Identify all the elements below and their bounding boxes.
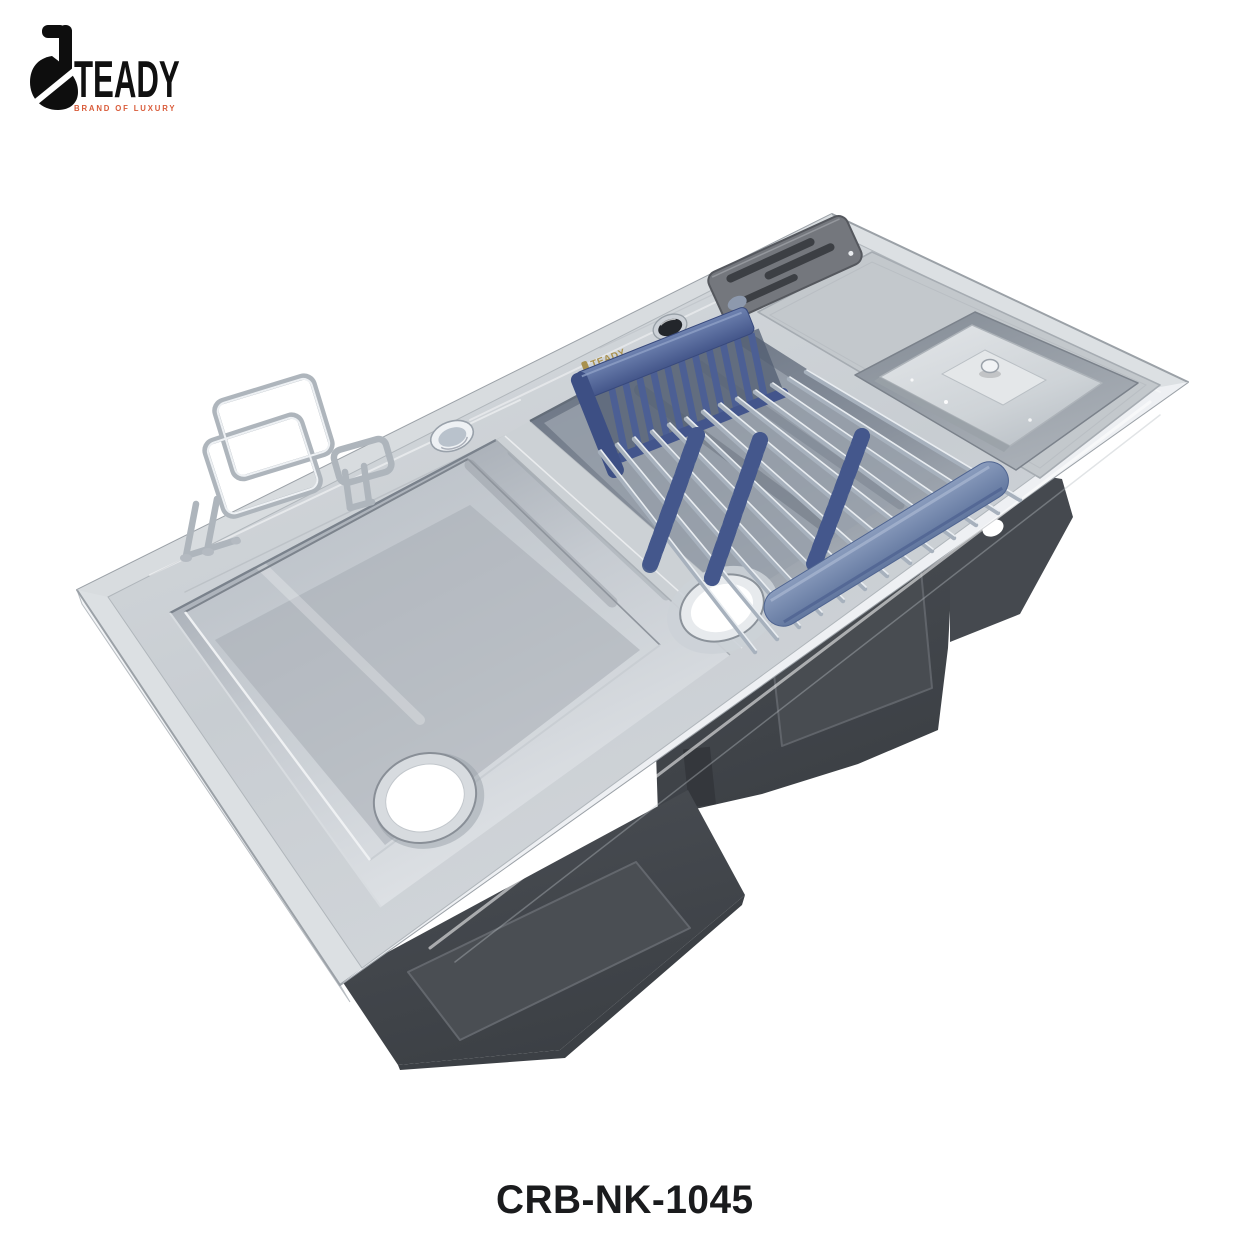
- lid-knob: [982, 360, 999, 373]
- product-photo: TEADY BRAND OF LUXURY: [0, 0, 1250, 1250]
- sink-illustration: TEADY: [0, 0, 1250, 1250]
- product-code-text: CRB-NK-1045: [496, 1178, 754, 1223]
- product-code: CRB-NK-1045: [0, 1178, 1250, 1223]
